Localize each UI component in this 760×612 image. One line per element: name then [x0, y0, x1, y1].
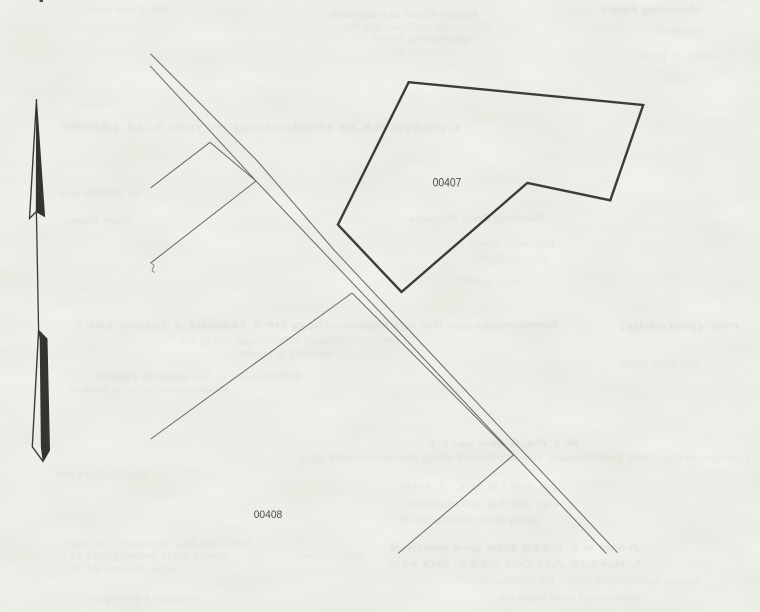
svg-text:mede I bv grs: mede I bv grs [90, 594, 200, 605]
svg-text:Jhr Encl nde: Jhr Encl nde [87, 5, 170, 16]
svg-text:Typbstgrf ne: Typbstgrf ne [54, 470, 150, 481]
svg-text:Verklaring kaart nr: Verklaring kaart nr [354, 34, 470, 45]
svg-text:vgr de kg schaafdnr: vgr de kg schaafdnr [404, 499, 560, 510]
svg-text:Xler Poss: Xler Poss [65, 216, 130, 227]
svg-text:Sectie nr: Sectie nr [389, 46, 450, 57]
svg-text:A LPeA bv wrtd: A LPeA bv wrtd [430, 439, 580, 450]
svg-text:v Grond: v Grond [75, 100, 112, 111]
svg-text:23456389: 23456389 [619, 360, 700, 371]
svg-text:wand it grds: wand it grds [240, 349, 332, 360]
svg-text:mede II: mede II [655, 26, 705, 37]
svg-text:bepergs strg nr: bepergs strg nr [179, 336, 300, 347]
svg-text:Astn v L 5919 Kte grs weilnd: Astn v L 5919 Kte grs weilnd [390, 543, 640, 554]
svg-text:vgr de kg schaafdnr bv: vgr de kg schaafdnr bv [70, 539, 250, 550]
svg-text:Terreinperceelnr op Hoolcollin: Terreinperceelnr op Hoolcolling DPA Mamu… [75, 320, 560, 332]
svg-text:Hoopkamp met perceelnr ne weil: Hoopkamp met perceelnr ne weiland ong bv… [300, 453, 750, 464]
svg-text:Adam Eten Gemeente: Adam Eten Gemeente [329, 10, 480, 21]
svg-text:MIJ I PA SJ JELI: MIJ I PA SJ JELI [465, 254, 550, 265]
svg-text:00407: 00407 [433, 175, 462, 189]
svg-text:vgr bedrijf s: vgr bedrijf s [70, 564, 180, 575]
svg-text:afd 3 grs: afd 3 grs [640, 52, 715, 63]
svg-text:a 5919 v L 1 Kte: a 5919 v L 1 Kte [399, 482, 550, 493]
svg-text:HGL A PA SI: HGL A PA SI [450, 277, 520, 288]
svg-text:Gemeente 's KICA - 231 IGL: Gemeente 's KICA - 231 IGL [339, 22, 490, 33]
svg-text:Keurmeesters a betrn: Keurmeesters a betrn [70, 385, 230, 396]
svg-text:weg om voetpad n: weg om voetpad n [70, 551, 232, 562]
svg-text:Vaste grond met stuks en grasl: Vaste grond met stuks en grasland [480, 576, 700, 587]
svg-text:ner (percelg): ner (percelg) [619, 320, 740, 332]
svg-text:Opgave RA nr Hoolcolling mi nd: Opgave RA nr Hoolcolling mi nde 1-43 182… [60, 122, 460, 134]
svg-text:nr 0040b grs: nr 0040b grs [60, 188, 140, 199]
svg-text:weg om voetpad n: weg om voetpad n [400, 515, 542, 526]
svg-text:Othmanenn bv weilnd (1grh): Othmanenn bv weilnd (1grh) [95, 372, 300, 383]
svg-text:bebouwd met huis nr: bebouwd met huis nr [499, 593, 640, 604]
svg-text:00408: 00408 [254, 509, 283, 521]
svg-text:(common): (common) [295, 551, 365, 562]
svg-text:Woning Fties: Woning Fties [599, 5, 700, 16]
svg-text:Moning Plan: Moning Plan [470, 239, 555, 250]
svg-text:Dwaling Eten Brigade: Dwaling Eten Brigade [408, 213, 545, 225]
svg-text:L IGI LIE ATI GO 323 L GO ern: L IGI LIE ATI GO 323 L GO ern [390, 559, 640, 570]
